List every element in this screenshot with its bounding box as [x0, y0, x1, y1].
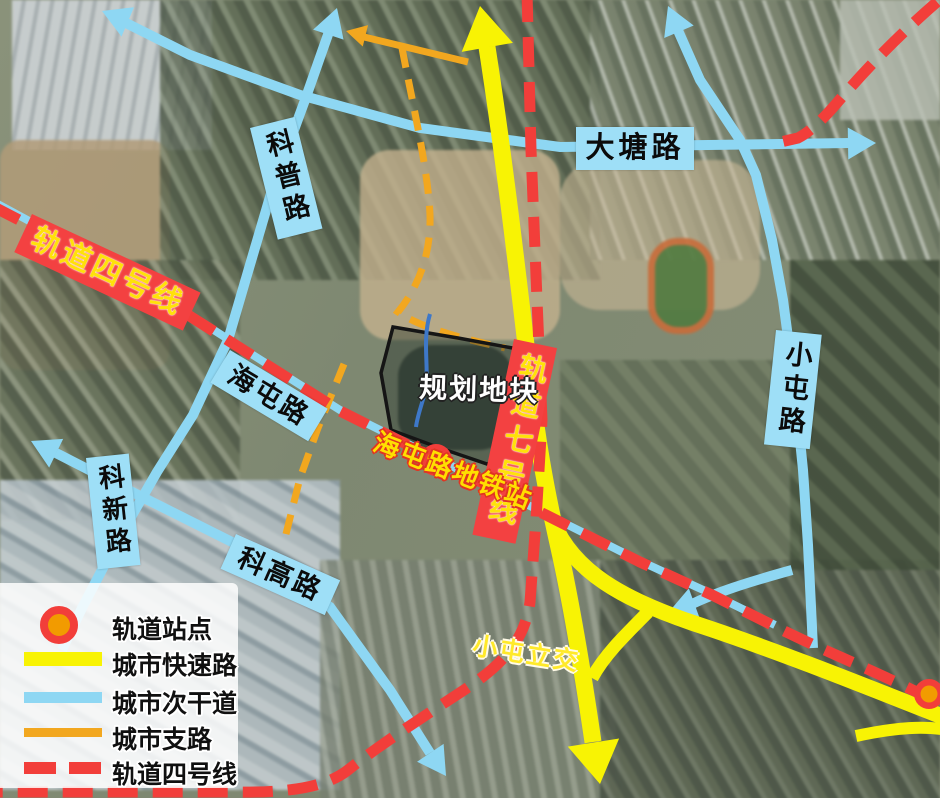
legend-item-label: 城市次干道	[112, 684, 237, 720]
planning-map: 科普路 大塘路 海屯路 小屯路 科新路 科高路 轨道四号线 轨道七号线 规划地块…	[0, 0, 940, 798]
legend-item-label: 城市快速路	[112, 646, 237, 682]
expressway-east-branch	[553, 522, 940, 718]
planning-plot-label: 规划地块	[419, 366, 540, 410]
road-label-datang: 大塘路	[576, 127, 694, 170]
rail-line4-north-branch	[772, 2, 937, 144]
legend-panel: 轨道站点 城市快速路 城市次干道 城市支路 轨道四号线	[0, 583, 238, 788]
legend-rail-line4-icon	[24, 762, 102, 774]
legend-item-label: 轨道四号线	[112, 755, 237, 791]
legend-branch-road-icon	[24, 728, 102, 737]
legend-secondary-road-icon	[24, 692, 102, 703]
legend-expressway-icon	[24, 652, 102, 666]
expressway-ramp	[592, 612, 648, 678]
expressway-fork	[856, 728, 940, 736]
legend-item-label: 城市支路	[112, 720, 212, 756]
legend-item-label: 轨道站点	[112, 610, 212, 646]
legend-station-icon	[40, 606, 78, 644]
branch-road-arrowhead	[343, 20, 368, 46]
